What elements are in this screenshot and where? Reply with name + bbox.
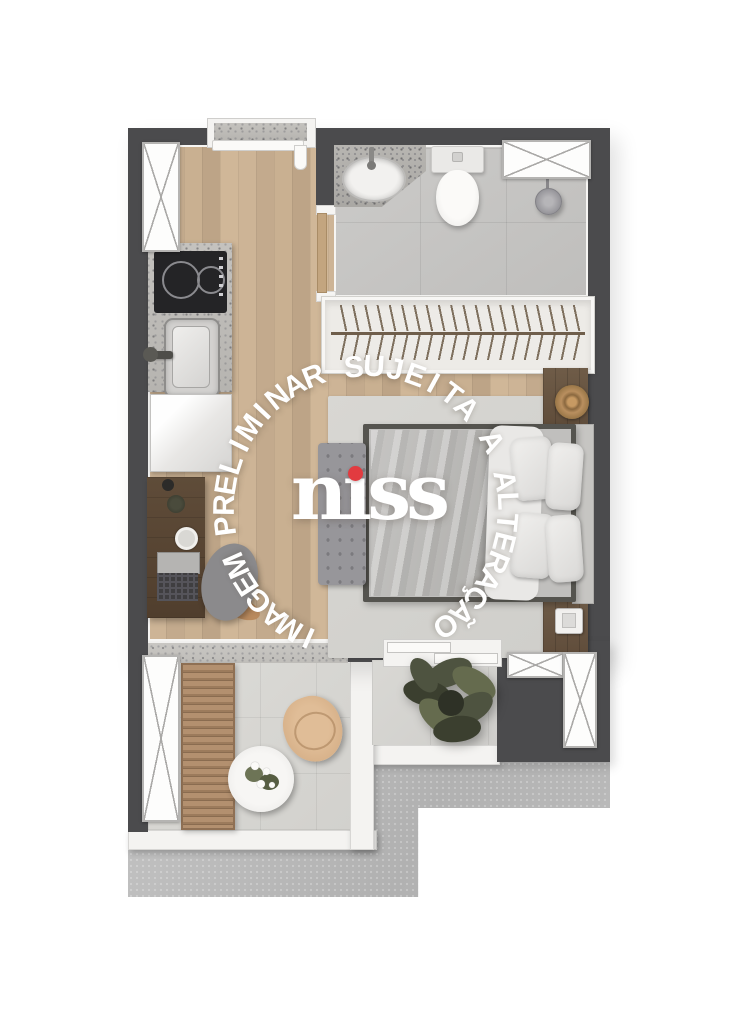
desk-cup — [175, 527, 198, 550]
potted-plant — [395, 652, 505, 752]
window-balcony — [142, 655, 180, 822]
entry-mat — [214, 123, 307, 141]
cooktop-controls — [219, 256, 223, 296]
balcony-lounger — [181, 663, 235, 830]
flower — [257, 780, 265, 788]
flower — [263, 768, 270, 775]
window-bottom-right-small — [507, 652, 564, 678]
entry-door-handle — [294, 145, 307, 170]
nightstand-accessory-detail — [562, 613, 576, 628]
bathroom-door — [317, 213, 327, 293]
shower-head — [535, 188, 562, 215]
pillow — [545, 514, 585, 583]
laptop-screen — [157, 552, 200, 574]
wardrobe — [322, 297, 594, 373]
desk-plant — [167, 495, 185, 513]
balcony-partition — [350, 658, 374, 850]
clothes-hangers — [335, 334, 581, 360]
brand-logo: nıss — [291, 454, 445, 532]
desk-accessory — [162, 479, 174, 491]
flower — [251, 762, 259, 770]
plant-center — [438, 690, 464, 716]
toilet — [436, 170, 479, 226]
balcony-railing-bottom — [128, 830, 377, 850]
pillow — [545, 442, 585, 511]
flower — [269, 782, 275, 788]
decor-tray — [555, 385, 589, 419]
clothes-hangers — [335, 305, 581, 331]
kitchen-sink-basin — [172, 326, 210, 388]
brand-logo-dot — [348, 466, 363, 481]
bathroom-wall — [316, 145, 334, 207]
laptop-keyboard — [157, 573, 198, 601]
window-kitchen — [142, 142, 180, 252]
floorplan-rendering: IMAGEMPRELIMINARSUJEITAAALTERAÇÃO nıss — [0, 0, 738, 1024]
refrigerator — [150, 394, 232, 472]
cooktop-burner — [162, 261, 200, 299]
flower-vase — [243, 760, 283, 796]
kitchen-faucet-base — [143, 347, 158, 362]
bathroom-faucet-base — [367, 161, 376, 170]
window-bathroom — [502, 140, 591, 179]
toilet-flush-button — [452, 152, 463, 162]
entry-door — [212, 140, 304, 151]
window-bottom-right-tall — [563, 652, 597, 748]
